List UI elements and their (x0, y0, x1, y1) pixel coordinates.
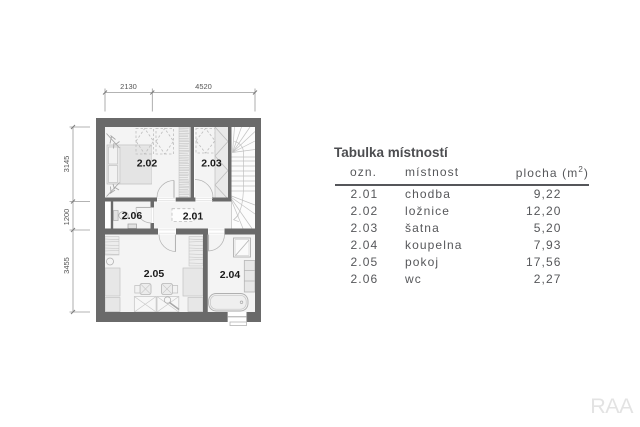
svg-text:2130: 2130 (120, 82, 137, 91)
svg-text:3145: 3145 (62, 156, 71, 173)
svg-text:1200: 1200 (62, 209, 71, 226)
svg-text:4520: 4520 (195, 82, 212, 91)
svg-text:2.04: 2.04 (220, 269, 241, 281)
svg-text:2.01: 2.01 (183, 211, 204, 223)
svg-text:3455: 3455 (62, 257, 71, 274)
svg-text:2.05: 2.05 (144, 268, 165, 280)
svg-text:2.06: 2.06 (122, 210, 143, 222)
svg-text:2.02: 2.02 (137, 158, 158, 170)
svg-text:2.03: 2.03 (201, 158, 222, 170)
